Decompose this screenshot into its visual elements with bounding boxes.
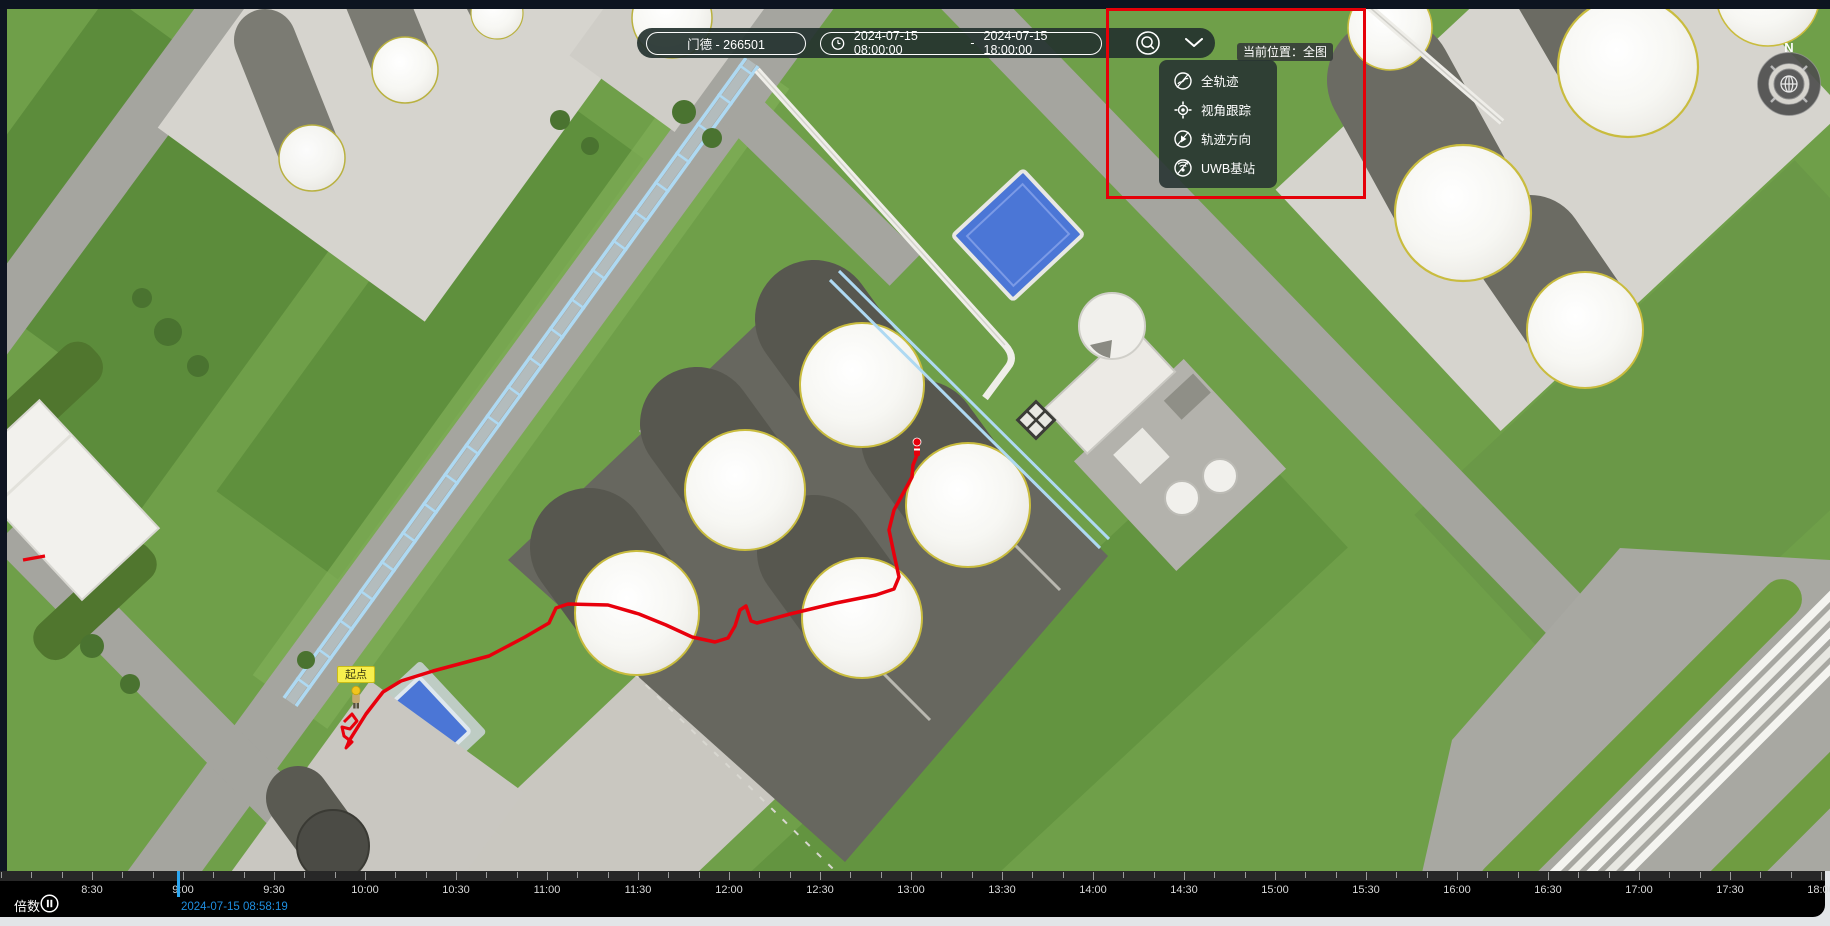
timeline-time-label: 12:30	[806, 884, 834, 896]
chevron-down-icon	[1185, 38, 1203, 48]
ruler-tick	[456, 872, 457, 880]
ruler-tick	[1093, 872, 1094, 880]
ruler-tick	[31, 872, 32, 878]
ruler-tick	[1669, 872, 1670, 878]
ruler-tick	[850, 872, 851, 878]
ruler-tick	[1639, 872, 1640, 880]
menu-item-label: 全轨迹	[1201, 71, 1239, 90]
timeline-time-label: 17:30	[1716, 884, 1744, 896]
ruler-tick	[1123, 872, 1124, 878]
timeline-time-label: 17:00	[1625, 884, 1653, 896]
timeline-time-label: 10:00	[351, 884, 379, 896]
track-direction-icon	[1173, 129, 1193, 149]
ruler-tick	[638, 872, 639, 880]
person-select[interactable]: 门德 - 266501	[646, 32, 806, 55]
ruler-tick	[577, 872, 578, 878]
menu-item-label: UWB基站	[1201, 158, 1255, 177]
timeline-time-label: 9:30	[263, 884, 284, 896]
ruler-tick	[335, 872, 336, 878]
ruler-tick	[1487, 872, 1488, 878]
timeline-time-label: 16:00	[1443, 884, 1471, 896]
timeline-time-label: 13:00	[897, 884, 925, 896]
timeline-time-label: 13:30	[988, 884, 1016, 896]
map-3d-viewport[interactable]	[0, 0, 1830, 871]
ruler-tick	[426, 872, 427, 878]
ruler-tick	[1821, 872, 1822, 880]
time-start: 2024-07-15 08:00:00	[854, 29, 961, 57]
ruler-tick	[1032, 872, 1033, 878]
ruler-tick	[1305, 872, 1306, 878]
ruler-tick	[608, 872, 609, 878]
ruler-tick	[1518, 872, 1519, 878]
menu-item-track-direction[interactable]: 轨迹方向	[1159, 124, 1277, 153]
ruler-tick	[1, 872, 2, 878]
timeline-time-label: 16:30	[1534, 884, 1562, 896]
view-follow-icon	[1173, 100, 1193, 120]
time-end: 2024-07-15 18:00:00	[984, 29, 1091, 57]
start-point-label: 起点	[337, 666, 375, 683]
ruler-tick	[972, 872, 973, 878]
ruler-tick	[1578, 872, 1579, 878]
ruler-tick	[274, 872, 275, 880]
ruler-tick	[1245, 872, 1246, 878]
ruler-tick	[244, 872, 245, 878]
ruler-tick	[1700, 872, 1701, 878]
current-location-badge: 当前位置：全图	[1237, 43, 1333, 61]
ruler-tick	[517, 872, 518, 878]
ruler-tick	[1275, 872, 1276, 880]
track-display-settings-button[interactable]	[1135, 30, 1161, 56]
ruler-tick	[183, 872, 184, 880]
compass-widget[interactable]: N	[1756, 32, 1822, 116]
timeline-time-label: 10:30	[442, 884, 470, 896]
timeline-playhead[interactable]	[177, 871, 180, 897]
ruler-tick	[941, 872, 942, 878]
ruler-tick	[1760, 872, 1761, 878]
ruler-tick	[1791, 872, 1792, 878]
menu-item-label: 视角跟踪	[1201, 100, 1251, 119]
ruler-tick	[547, 872, 548, 880]
ruler-tick	[1609, 872, 1610, 878]
ruler-tick	[1154, 872, 1155, 878]
menu-item-view-follow[interactable]: 视角跟踪	[1159, 95, 1277, 124]
ruler-tick	[1366, 872, 1367, 880]
timeline-time-label: 11:00	[534, 884, 561, 896]
time-separator: -	[970, 36, 974, 50]
timeline-time-label: 18:00	[1807, 884, 1830, 896]
timeline-time-label: 8:30	[81, 884, 102, 896]
end-person-marker	[913, 438, 921, 456]
person-select-value: 门德 - 266501	[687, 34, 765, 53]
pause-button[interactable]	[40, 894, 59, 913]
ruler-tick	[365, 872, 366, 880]
menu-item-label: 轨迹方向	[1201, 129, 1251, 148]
ruler-tick	[304, 872, 305, 878]
uwb-station-icon	[1173, 158, 1193, 178]
ruler-tick	[62, 872, 63, 878]
window-top-strip	[0, 0, 1830, 9]
ruler-tick	[122, 872, 123, 878]
ruler-tick	[153, 872, 154, 878]
timeline-time-label: 11:30	[625, 884, 652, 896]
pause-icon	[40, 894, 59, 913]
timeline-time-label: 15:00	[1261, 884, 1289, 896]
ruler-tick	[759, 872, 760, 878]
ruler-tick	[1548, 872, 1549, 880]
clock-icon	[831, 36, 845, 51]
timeline-time-label: 14:00	[1079, 884, 1107, 896]
ruler-tick	[699, 872, 700, 878]
toolbar: 门德 - 266501 2024-07-15 08:00:00 - 2024-0…	[637, 28, 1215, 58]
ruler-tick	[790, 872, 791, 878]
timeline-time-label: 14:30	[1170, 884, 1198, 896]
globe-icon	[1781, 76, 1797, 92]
ruler-tick	[881, 872, 882, 878]
toolbar-collapse-button[interactable]	[1185, 38, 1203, 48]
track-settings-icon	[1135, 30, 1161, 56]
ruler-tick	[668, 872, 669, 878]
ruler-tick	[1457, 872, 1458, 880]
full-track-icon	[1173, 71, 1193, 91]
speed-multiplier-label: 倍数	[14, 896, 40, 915]
app-window: 起点 门德 - 266501 2024-07-15 08:00:00 - 202…	[0, 0, 1830, 926]
ruler-tick	[1214, 872, 1215, 878]
menu-item-full-track[interactable]: 全轨迹	[1159, 66, 1277, 95]
ruler-tick	[1002, 872, 1003, 880]
timeline-ruler[interactable]	[0, 871, 1825, 881]
ruler-tick	[486, 872, 487, 878]
timeline-time-label: 9:00	[172, 884, 193, 896]
track-options-menu: 全轨迹 视角跟踪 轨迹方向	[1159, 60, 1277, 188]
menu-item-uwb-station[interactable]: UWB基站	[1159, 153, 1277, 182]
ruler-tick	[820, 872, 821, 880]
ruler-tick	[1336, 872, 1337, 878]
ruler-tick	[729, 872, 730, 880]
current-time-readout: 2024-07-15 08:58:19	[181, 901, 288, 913]
ruler-tick	[1184, 872, 1185, 880]
ruler-tick	[213, 872, 214, 878]
ruler-tick	[911, 872, 912, 880]
ruler-tick	[1427, 872, 1428, 878]
time-range-picker[interactable]: 2024-07-15 08:00:00 - 2024-07-15 18:00:0…	[820, 32, 1102, 55]
ruler-tick	[1730, 872, 1731, 880]
window-left-strip	[0, 9, 7, 871]
ruler-tick	[92, 872, 93, 880]
ruler-tick	[395, 872, 396, 878]
ruler-tick	[1396, 872, 1397, 878]
timeline-time-label: 15:30	[1352, 884, 1380, 896]
timeline-time-label: 12:00	[715, 884, 743, 896]
ruler-tick	[1063, 872, 1064, 878]
